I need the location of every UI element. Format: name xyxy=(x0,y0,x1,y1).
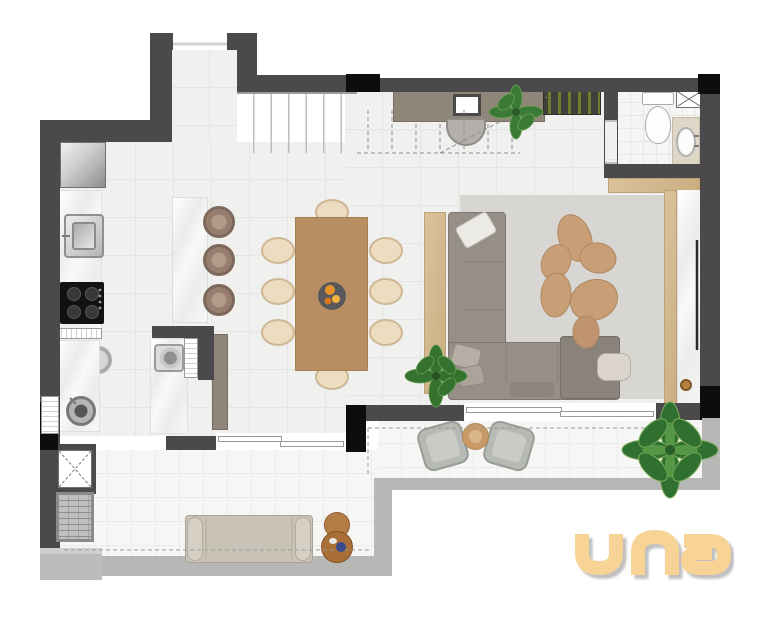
pantry-washer xyxy=(154,344,184,372)
balcony-bench xyxy=(185,515,313,563)
column-center-bottom xyxy=(346,405,366,452)
dining-sliding-window-panel-1 xyxy=(218,436,282,442)
wall-living-bottom-right xyxy=(656,403,704,420)
living-sliding-door-panel-2 xyxy=(560,411,654,417)
wall-top-main xyxy=(345,78,703,92)
decor-knob xyxy=(680,379,692,391)
dining-chair-right-3 xyxy=(369,319,403,346)
dining-chair-left-3 xyxy=(261,319,295,346)
kitchen-pass-window xyxy=(56,328,102,339)
column-top-right xyxy=(698,74,720,94)
balcony-slab-corner xyxy=(40,548,102,580)
brand-logo: una xyxy=(572,527,734,583)
shaft-laundry xyxy=(58,450,92,488)
wall-right xyxy=(700,92,720,420)
wall-bathroom-bottom xyxy=(604,164,700,178)
wall-corridor-left xyxy=(150,33,172,122)
island-stool-1 xyxy=(203,206,235,238)
wall-entry-side xyxy=(237,48,257,92)
floor-plan: una xyxy=(0,0,768,621)
column-right-bottom xyxy=(700,386,720,420)
entry-corridor-floor xyxy=(172,50,237,142)
wall-pantry-right xyxy=(198,338,214,380)
dining-chair-right-2 xyxy=(369,278,403,305)
tall-cabinet xyxy=(212,334,228,430)
sideboard-bench xyxy=(424,212,446,394)
logo-letter-n xyxy=(638,537,672,575)
logo-letter-u xyxy=(582,534,616,568)
laundry-window xyxy=(41,396,59,434)
wall-living-bottom-left xyxy=(362,405,464,421)
tv-panel-wood xyxy=(664,190,677,416)
wall-dining-bottom xyxy=(166,436,216,450)
cooktop xyxy=(60,282,104,324)
side-table xyxy=(597,353,631,381)
dining-sliding-window-panel-2 xyxy=(280,441,344,447)
balcony-bench-arm-right xyxy=(295,517,311,561)
living-sliding-door-panel-1 xyxy=(466,407,562,413)
wall-entry-step xyxy=(257,75,347,92)
balcony-round-table xyxy=(462,423,489,450)
vanity-sink xyxy=(676,127,696,157)
sofa-ottoman xyxy=(510,382,554,397)
dining-chair-left-2 xyxy=(261,278,295,305)
pantry-door xyxy=(184,338,198,378)
dining-chair-right-1 xyxy=(369,237,403,264)
laundry-tub xyxy=(66,396,96,426)
balcony-side-table-large xyxy=(321,531,353,563)
island-stool-2 xyxy=(203,244,235,276)
staircase xyxy=(237,92,357,153)
island-stool-3 xyxy=(203,284,235,316)
wall-pantry-top xyxy=(152,326,214,338)
railing-right xyxy=(702,418,720,488)
railing-step xyxy=(374,480,392,576)
ac-condenser xyxy=(56,492,94,542)
dining-chair-left-1 xyxy=(261,237,295,264)
laptop xyxy=(453,94,481,116)
toilet-bowl xyxy=(645,106,671,144)
column-stairs-top xyxy=(346,74,380,92)
kitchen-sink-basin xyxy=(72,222,96,250)
logo-letter-a xyxy=(684,541,724,568)
balcony-bench-arm-left xyxy=(187,517,203,561)
toilet-tank xyxy=(642,92,674,105)
bathroom-door-opening xyxy=(605,120,617,164)
refrigerator xyxy=(60,142,106,188)
railing-bottom-right xyxy=(374,478,720,490)
dining-table xyxy=(295,217,368,371)
wall-kitchen-top xyxy=(40,120,172,142)
